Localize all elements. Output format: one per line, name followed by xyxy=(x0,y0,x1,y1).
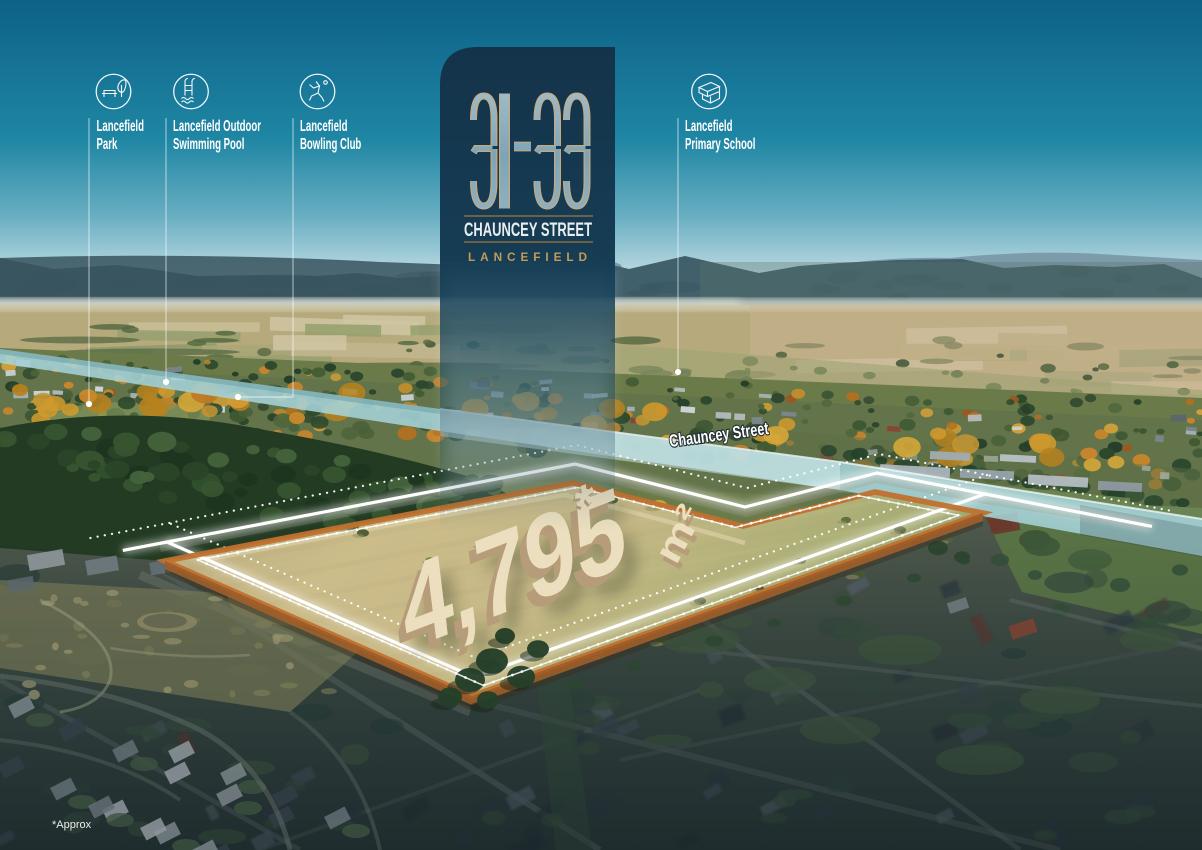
svg-text:Lancefield Outdoor: Lancefield Outdoor xyxy=(173,117,261,135)
svg-text:Swimming Pool: Swimming Pool xyxy=(173,135,244,153)
svg-text:LANCEFIELD: LANCEFIELD xyxy=(468,250,592,264)
svg-text:CHAUNCEY STREET: CHAUNCEY STREET xyxy=(464,220,592,241)
svg-text:*Approx: *Approx xyxy=(52,819,92,831)
svg-text:Primary School: Primary School xyxy=(685,135,755,153)
svg-text:Lancefield: Lancefield xyxy=(300,117,348,135)
svg-text:Park: Park xyxy=(97,135,118,153)
svg-text:Lancefield: Lancefield xyxy=(685,117,733,135)
svg-text:Lancefield: Lancefield xyxy=(97,117,145,135)
svg-text:Bowling Club: Bowling Club xyxy=(300,135,361,153)
